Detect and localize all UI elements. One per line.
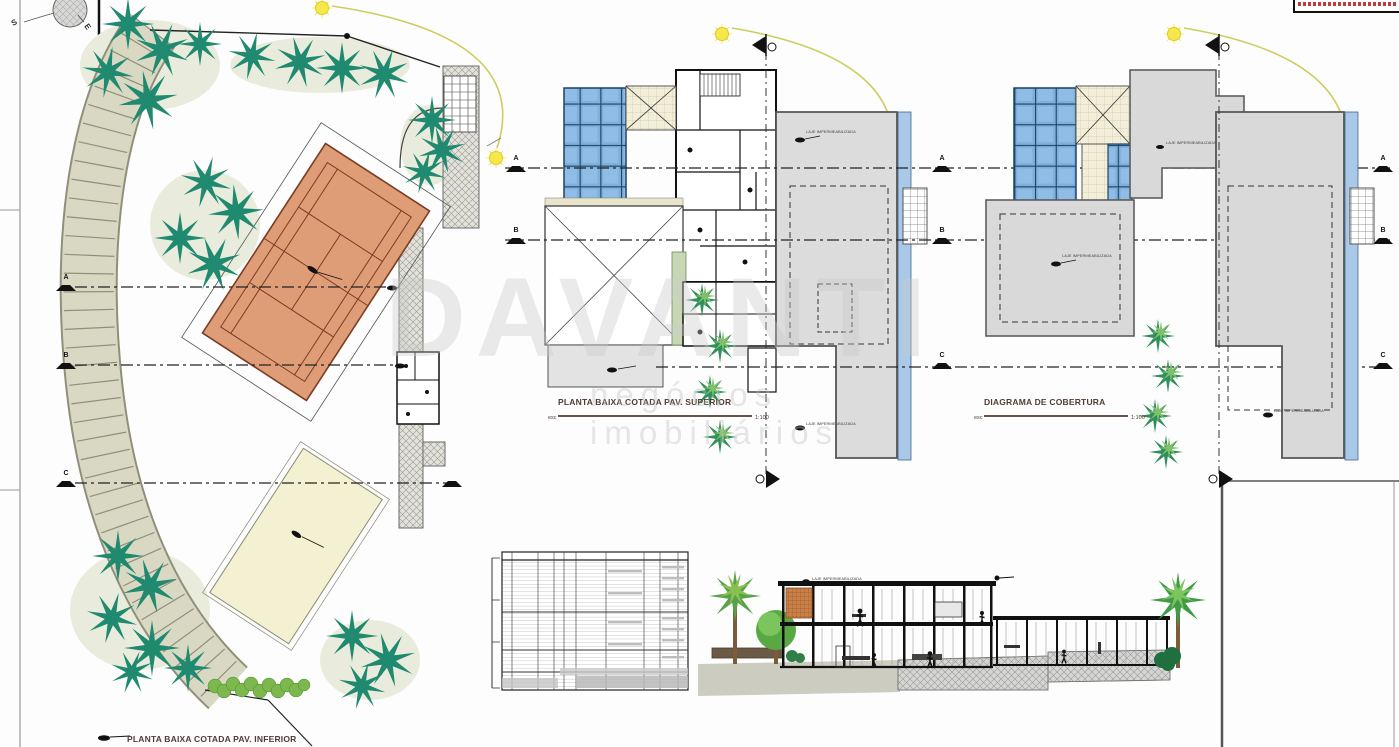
bush-icon <box>703 329 737 363</box>
palm-tree-icon <box>164 644 212 692</box>
sun-icon <box>1163 23 1185 45</box>
revision-stamp <box>1293 0 1399 13</box>
roof-plan-title: DIAGRAMA DE COBERTURA <box>984 397 1105 407</box>
trellis-deck <box>1350 188 1374 244</box>
pool-strip <box>1345 112 1358 460</box>
bush-icon <box>1141 319 1175 353</box>
section-elevation: LAJE IMPERMEABILIZADA <box>698 568 1206 696</box>
bush-icon <box>685 283 719 317</box>
site-plan: A B C <box>56 0 479 746</box>
skylight-x-box <box>626 86 676 130</box>
ground <box>698 660 900 696</box>
service-block <box>397 352 439 424</box>
grid-letter: C <box>939 352 944 359</box>
compass-icon: S E <box>10 0 93 32</box>
skylight-panel <box>1082 144 1108 206</box>
compass-east-label: E <box>82 22 93 32</box>
sun-icon <box>485 147 507 169</box>
grid-letter: A <box>939 155 944 162</box>
compass-south-label: S <box>10 17 20 28</box>
scale-value: 1:100 <box>755 415 769 421</box>
slab-note: LAJE IMPERMEABILIZADA <box>806 421 856 426</box>
slab-note: LAJE IMPERMEABILIZADA <box>1166 140 1216 145</box>
glass-skylight-small <box>1108 144 1132 206</box>
skylight-x-box <box>1076 86 1130 144</box>
section-trees-right <box>1150 570 1206 671</box>
palm-tree-icon <box>709 570 761 622</box>
slab-note: LAJE IMPERMEABILIZADA <box>812 576 862 581</box>
grid-letter: A <box>513 155 518 162</box>
grid-letter: C <box>1380 352 1385 359</box>
slab-note: LAJE IMPERMEABILIZADA <box>806 129 856 134</box>
grid-letter: A <box>1380 155 1385 162</box>
grid-letter: B <box>1380 227 1385 234</box>
bush-icon <box>1149 435 1183 469</box>
slab-note: LAJE IMPERMEABILIZADA <box>1274 408 1324 413</box>
palm-tree-icon <box>326 610 378 662</box>
garden-bushes <box>1138 319 1185 469</box>
slab-note: LAJE IMPERMEABILIZADA <box>1062 253 1112 258</box>
schedule-table <box>492 552 688 690</box>
grid-letter: B <box>939 227 944 234</box>
grid-letter: A <box>63 274 68 281</box>
double-height-void <box>545 198 683 387</box>
palm-tree-icon <box>316 42 368 94</box>
drawing-sheet: S E <box>0 0 1399 747</box>
sun-icon <box>311 0 333 19</box>
upper-plan-title: PLANTA BAIXA COTADA PAV. SUPERIOR <box>558 397 731 407</box>
grid-letter: B <box>63 352 68 359</box>
section-building: LAJE IMPERMEABILIZADA <box>778 576 1014 669</box>
architectural-drawing: S E <box>0 0 1399 747</box>
rooms-block <box>676 70 776 282</box>
site-plan-title: PLANTA BAIXA COTADA PAV. INFERIOR <box>127 734 297 744</box>
roof-plan: LAJE IMPERMEABILIZADA LAJE IMPERMEABILIZ… <box>986 34 1374 488</box>
sun-icon <box>711 23 733 45</box>
glass-skylight <box>1014 88 1076 212</box>
pool-strip <box>898 112 911 460</box>
palm-tree-icon <box>92 530 144 582</box>
bush-icon <box>703 420 737 454</box>
glass-block-wall <box>786 588 812 618</box>
scale-prefix: esc <box>548 415 557 421</box>
scale-value: 1:100 <box>1131 415 1145 421</box>
scale-prefix: esc <box>974 415 983 421</box>
bush-icon <box>1151 359 1185 393</box>
grid-letter: C <box>63 470 68 477</box>
stamp-text-lines <box>1298 2 1396 6</box>
lawn-field <box>203 442 390 651</box>
palm-tree-icon <box>1150 572 1206 628</box>
upper-floor-plan: LAJE IMPERMEABILIZADA LAJE IMPERMEABILIZ… <box>545 34 927 488</box>
roof-slab: LAJE IMPERMEABILIZADA LAJE IMPERMEABILIZ… <box>776 112 897 458</box>
grid-letter: B <box>513 227 518 234</box>
glass-skylight <box>564 88 626 212</box>
trellis-deck <box>903 188 927 244</box>
